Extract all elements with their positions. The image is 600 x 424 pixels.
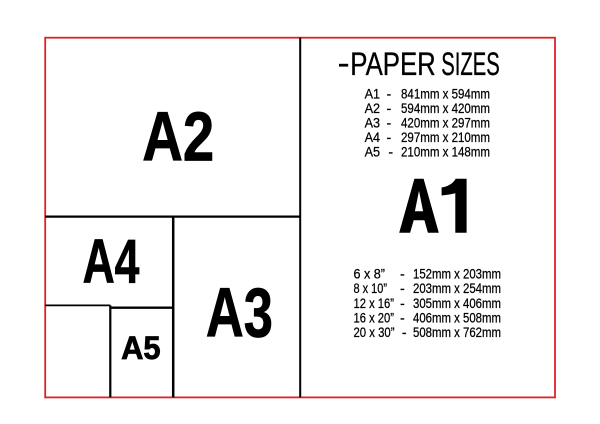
svg-text:841mm x 594mm 594mm x 420m: 841mm x 594mm 594mm x 420mm 420mm x 297m… — [401, 87, 494, 161]
svg-text:A5: A5 — [121, 329, 161, 366]
svg-text:A4: A4 — [83, 226, 140, 296]
svg-text:SIZES: SIZES — [441, 46, 500, 82]
svg-text:152mm x 203mm 203mm x 254m: 152mm x 203mm 203mm x 254mm 305mm x 406m… — [413, 266, 505, 341]
svg-text:PAPER: PAPER — [350, 46, 436, 82]
svg-text:A2: A2 — [142, 98, 214, 176]
svg-text:A3: A3 — [206, 274, 273, 352]
